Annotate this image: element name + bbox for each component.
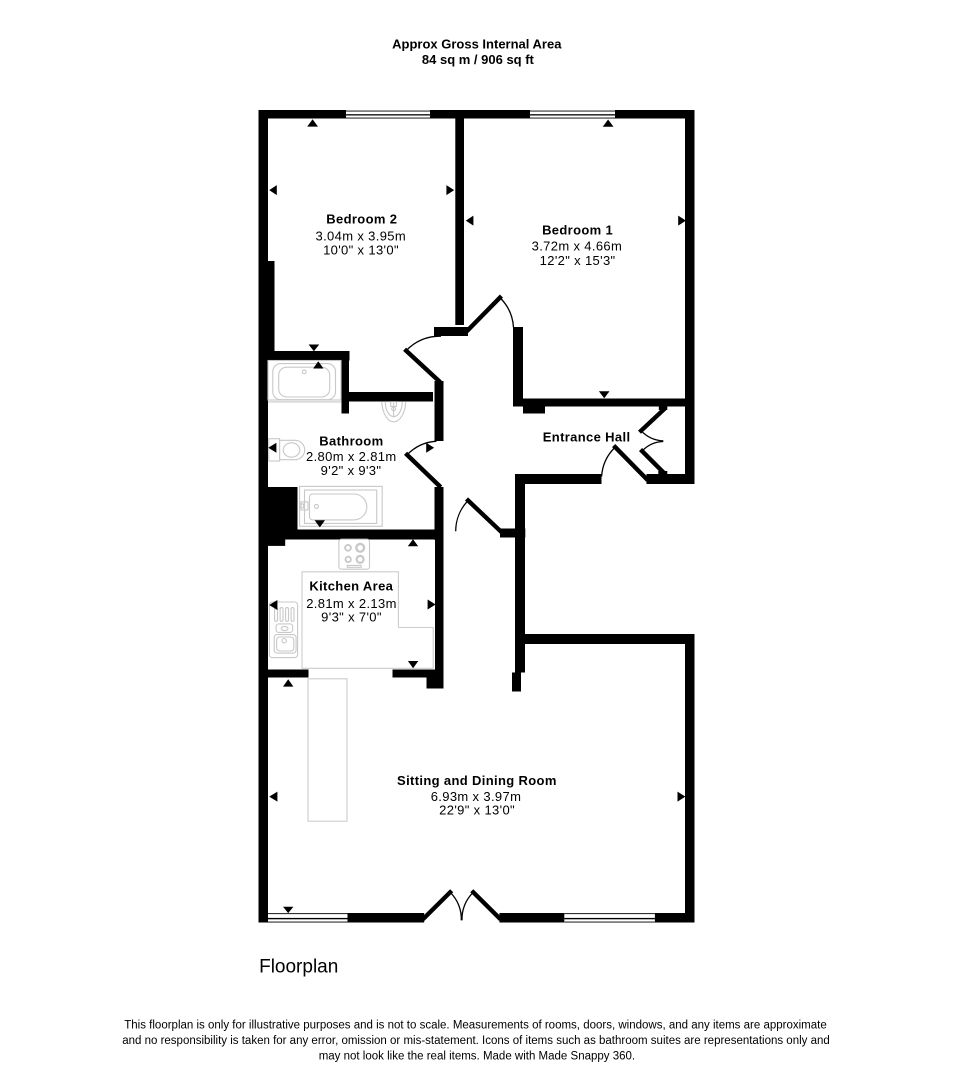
- svg-text:3.72m x 4.66m: 3.72m x 4.66m: [532, 239, 623, 254]
- svg-text:9'3" x 7'0": 9'3" x 7'0": [321, 610, 382, 625]
- svg-text:2.80m x 2.81m: 2.80m x 2.81m: [306, 449, 397, 464]
- svg-text:Bedroom 1: Bedroom 1: [542, 223, 613, 238]
- svg-text:This floorplan is only for ill: This floorplan is only for illustrative …: [124, 1020, 826, 1032]
- svg-text:Bedroom 2: Bedroom 2: [326, 211, 397, 226]
- svg-text:9'2" x 9'3": 9'2" x 9'3": [321, 463, 382, 478]
- svg-text:84 sq m / 906 sq ft: 84 sq m / 906 sq ft: [422, 52, 535, 67]
- svg-text:may not look like the real ite: may not look like the real items. Made w…: [319, 1050, 635, 1062]
- svg-text:Entrance Hall: Entrance Hall: [543, 430, 631, 445]
- svg-text:10'0" x 13'0": 10'0" x 13'0": [323, 243, 399, 258]
- svg-text:22'9" x 13'0": 22'9" x 13'0": [439, 803, 515, 818]
- svg-text:Sitting and Dining Room: Sitting and Dining Room: [397, 773, 557, 788]
- svg-text:12'2" x 15'3": 12'2" x 15'3": [540, 253, 616, 268]
- svg-text:Floorplan: Floorplan: [259, 956, 338, 977]
- svg-text:3.04m x 3.95m: 3.04m x 3.95m: [316, 228, 407, 243]
- svg-text:Approx Gross Internal Area: Approx Gross Internal Area: [392, 36, 562, 51]
- svg-text:Kitchen Area: Kitchen Area: [309, 579, 393, 594]
- svg-text:Bathroom: Bathroom: [319, 434, 383, 449]
- svg-text:and no responsibility is taken: and no responsibility is taken for any e…: [122, 1035, 830, 1047]
